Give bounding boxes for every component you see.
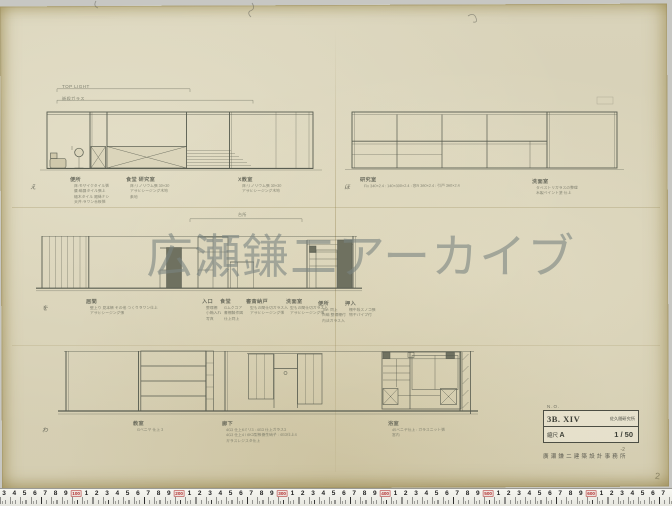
ruler-digit: 2 (198, 490, 202, 497)
elevation-key-mark: を (42, 297, 48, 315)
ruler-digit: 5 (435, 490, 439, 497)
annotation: 入口整理棚小箱入れ写真 (202, 298, 221, 322)
annotation-notes: 整理棚小箱入れ写真 (202, 305, 221, 322)
scale-value: 1 / 50 (597, 430, 638, 439)
dimension-label: 嵌殺ガラス (62, 96, 85, 102)
ruler-digit: 1 (394, 490, 398, 497)
ruler-digit: 4 (321, 490, 325, 497)
ruler-digit: 5 (23, 490, 27, 497)
ruler-digit: 1 (291, 490, 295, 497)
ruler-digit: 2 (507, 490, 511, 497)
ruler-digit: 4 (527, 490, 531, 497)
ruler-digit: 4 (12, 490, 16, 497)
annotation-notes: Gベニヤ 仕上 3 (133, 427, 163, 433)
ruler-digit: 9 (167, 490, 171, 497)
ruler-digit: 6 (548, 490, 552, 497)
ruler-digit: 4 (115, 490, 119, 497)
margin-page-number: 2 (654, 471, 660, 481)
ruler-digit: 7 (146, 490, 150, 497)
ruler-digit: 5 (332, 490, 336, 497)
ruler-digit: 6 (239, 490, 243, 497)
ruler-digit: 6 (445, 490, 449, 497)
annotation: 洗面室タペストリガラスの整理木製ペイント塗 仕上 (532, 178, 578, 197)
ruler-digit: 5 (229, 490, 233, 497)
annotation-notes: タペストリガラスの整理木製ペイント塗 仕上 (532, 185, 578, 197)
ruler-digit: 7 (558, 490, 562, 497)
ruler-digit: 2 (404, 490, 408, 497)
annotation-notes: Fix 340×2.4 : 140×300×2.4 : 窓R 360×2.4 :… (360, 183, 460, 190)
title-block-box: 3B. XIV 佐久間研究所 縮尺 A 1 / 50 (543, 410, 639, 443)
ruler-digit: 5 (126, 490, 130, 497)
annotation-notes: 45ベニヤ仕上 : ガラスニット張宮内 (388, 427, 445, 439)
elevation-key-mark: え (30, 176, 36, 194)
ruler-digit: 8 (260, 490, 264, 497)
ruler-digit: 8 (363, 490, 367, 497)
ruler-digit: 7 (661, 490, 665, 497)
annotation-notes: 型もの間仕切ガラス入アサヒシージング張 (246, 305, 288, 317)
ruler-digit: 9 (476, 490, 480, 497)
drawing-number: 3B. XIV (544, 414, 597, 424)
ruler-digit: 6 (342, 490, 346, 497)
annotation: 研究室Fix 340×2.4 : 140×300×2.4 : 窓R 360×2.… (360, 176, 460, 190)
annotation-notes: 床:リノリウム張 30×30アサヒシージング木地 (238, 183, 281, 195)
ruler-digit: 5 (538, 490, 542, 497)
title-block-no-label: N.O. (547, 404, 643, 409)
firm-stamp: 廣瀬鎌二建築設計事務所 (543, 452, 643, 460)
annotation: 便所床:モザイクタイル張腰:磁器タイル張上幅木タイル 廻縁ナシ天井:ラワン合板張 (70, 176, 109, 205)
annotation: 食堂Gムクコア書棚製作図仕上同上 (220, 298, 243, 322)
ruler-digit: 4 (424, 490, 428, 497)
ruler-hundred-label: 500 (483, 490, 494, 497)
annotation-notes: 棚中段スノコ張物干パイプ付 (345, 307, 376, 319)
annotation-notes: Tile: 同上白磁 整理棚付内法ガラス入 (318, 307, 346, 324)
ruler-digit: 3 (517, 490, 521, 497)
ruler-digit: 4 (218, 490, 222, 497)
annotation: 居間壁上り 見本帳 その他 つくりラワン仕上アサヒシージング張 (86, 298, 158, 317)
ruler-digit: 9 (270, 490, 274, 497)
ruler-digit: 7 (352, 490, 356, 497)
ruler-digit: 7 (455, 490, 459, 497)
ruler-digit: 9 (579, 490, 583, 497)
annotation-notes: 壁上り 見本帳 その他 つくりラワン仕上アサヒシージング張 (86, 305, 158, 317)
annotation: 食堂 研究室床:リノリウム張 30×30アサヒシージング木地素地 (126, 176, 169, 200)
elevation-key-mark: わ (42, 419, 48, 437)
ruler-digit: 8 (54, 490, 58, 497)
annotation-notes: 床:リノリウム張 30×30アサヒシージング木地素地 (126, 183, 169, 200)
ruler: 3456789100123456789200123456789300123456… (0, 488, 672, 506)
ruler-digit: 1 (85, 490, 89, 497)
client-name: 佐久間研究所 (597, 416, 638, 422)
ruler-hundred-label: 600 (586, 490, 597, 497)
annotation-notes: 4G3 仕上6ミリ3 : 4G3 仕上ガラス34G3 仕上4 / 6K3型板養生… (222, 427, 297, 444)
annotation: 書斎納戸型もの間仕切ガラス入アサヒシージング張 (246, 298, 288, 317)
annotation: 教室Gベニヤ 仕上 3 (133, 420, 163, 433)
scale-label: 縮尺 A (544, 431, 597, 439)
ruler-digit: 6 (33, 490, 37, 497)
ruler-digit: 2 (610, 490, 614, 497)
ruler-digit: 8 (569, 490, 573, 497)
annotation: 便所Tile: 同上白磁 整理棚付内法ガラス入 (318, 300, 346, 324)
ruler-digit: 6 (136, 490, 140, 497)
ruler-hundred-label: 400 (380, 490, 391, 497)
annotation: 廊下4G3 仕上6ミリ3 : 4G3 仕上ガラス34G3 仕上4 / 6K3型板… (222, 420, 297, 444)
ruler-digit: 8 (157, 490, 161, 497)
ruler-digit: 3 (620, 490, 624, 497)
annotation: X教室床:リノリウム張 30×30アサヒシージング木地 (238, 176, 281, 195)
ruler-digit: 3 (2, 490, 6, 497)
ruler-digit: 2 (301, 490, 305, 497)
ruler-hundred-label: 300 (277, 490, 288, 497)
watermark: 広瀬鎌二アーカイブ (146, 218, 575, 287)
ruler-digit: 2 (95, 490, 99, 497)
ruler-digit: 1 (497, 490, 501, 497)
ruler-digit: 3 (105, 490, 109, 497)
scanned-drawing-sheet: え便所床:モザイクタイル張腰:磁器タイル張上幅木タイル 廻縁ナシ天井:ラワン合板… (0, 0, 672, 506)
dimension-label: TOP LIGHT (62, 84, 90, 89)
ruler-digit: 3 (414, 490, 418, 497)
ruler-ticks (0, 497, 672, 504)
ruler-digit: 1 (188, 490, 192, 497)
title-block: N.O. 3B. XIV 佐久間研究所 縮尺 A 1 / 50 -2 廣瀬鎌二建… (543, 404, 643, 460)
annotation: 押入棚中段スノコ張物干パイプ付 (345, 300, 376, 319)
ruler-digit: 5 (641, 490, 645, 497)
ruler-digit: 1 (600, 490, 604, 497)
ruler-digit: 9 (373, 490, 377, 497)
annotation: 浴室45ベニヤ仕上 : ガラスニット張宮内 (388, 420, 445, 439)
ruler-digit: 7 (43, 490, 47, 497)
ruler-digit: 3 (311, 490, 315, 497)
ruler-digit: 4 (630, 490, 634, 497)
ruler-digit: 3 (208, 490, 212, 497)
annotation-notes: 床:モザイクタイル張腰:磁器タイル張上幅木タイル 廻縁ナシ天井:ラワン合板張 (70, 183, 109, 205)
ruler-digit: 9 (64, 490, 68, 497)
elevation-key-mark: ほ (344, 176, 350, 194)
ruler-hundred-label: 100 (71, 490, 82, 497)
ruler-digit: 6 (651, 490, 655, 497)
ruler-hundred-label: 200 (174, 490, 185, 497)
annotation-notes: Gムクコア書棚製作図仕上同上 (220, 305, 243, 322)
ruler-digit: 7 (249, 490, 253, 497)
ruler-digit: 8 (466, 490, 470, 497)
